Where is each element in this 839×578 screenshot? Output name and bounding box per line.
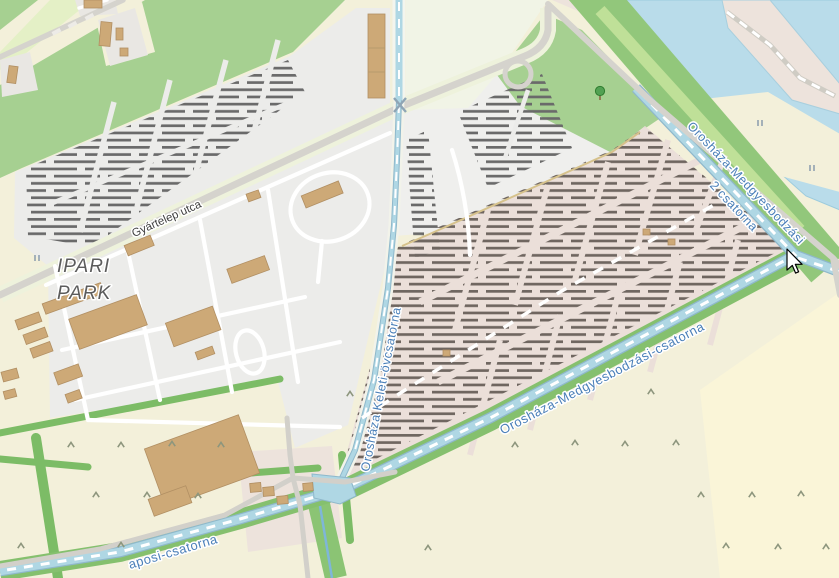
building-box (668, 239, 675, 245)
building (99, 22, 112, 47)
building (277, 495, 289, 504)
building-box (443, 350, 450, 356)
building (303, 483, 314, 492)
building (116, 28, 123, 40)
map-canvas[interactable]: IPARI PARK Gyártelep utca Orosháza Kelet… (0, 0, 839, 578)
building (368, 14, 385, 98)
building (120, 48, 128, 56)
building-box (643, 229, 650, 235)
place-label-line1: IPARI (57, 256, 110, 277)
building (84, 0, 102, 8)
place-label-line2: PARK (57, 283, 112, 304)
map-viewport[interactable]: IPARI PARK Gyártelep utca Orosháza Kelet… (0, 0, 839, 578)
building (250, 482, 262, 492)
building (7, 66, 18, 84)
building (263, 486, 275, 496)
